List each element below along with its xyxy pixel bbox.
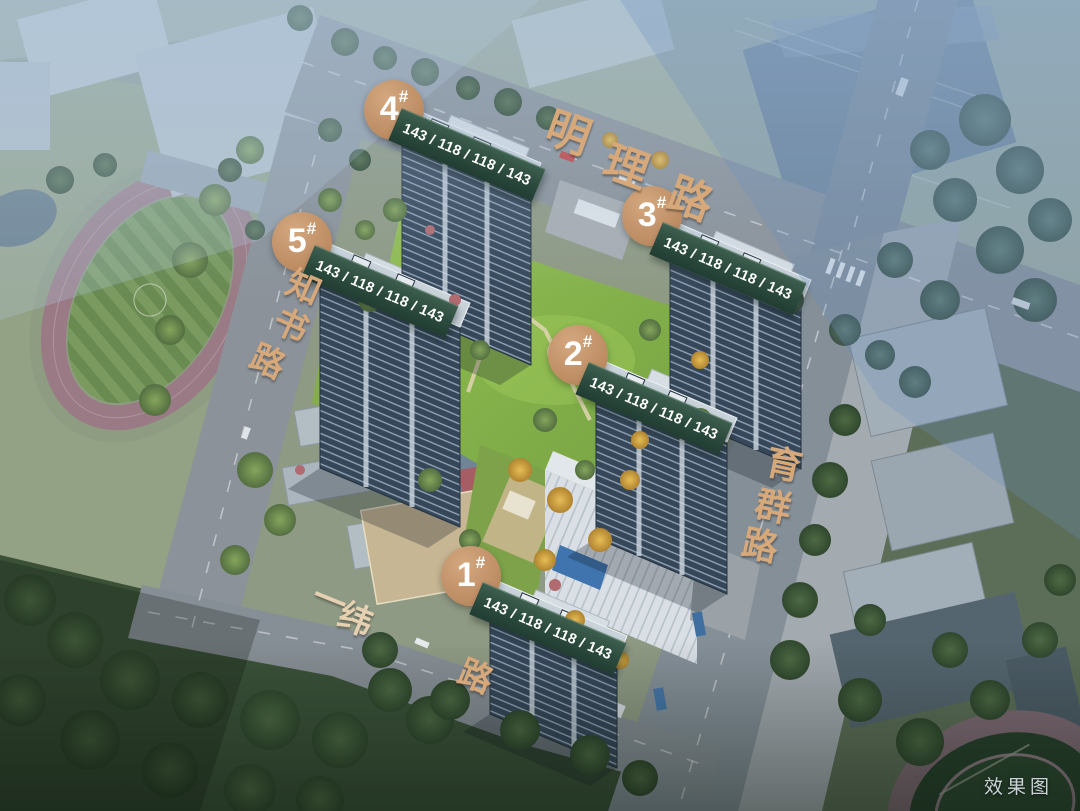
watermark-rendering-disclaimer: 效果图	[984, 772, 1053, 799]
badge-number: 5	[288, 212, 307, 272]
badge-number: 3	[638, 186, 657, 246]
badge-number: 1	[457, 546, 476, 606]
aerial-rendering: 4# 5# 3# 2# 1# 143 / 118 / 118 / 143 143…	[0, 0, 1080, 811]
badge-number: 2	[564, 325, 583, 385]
road-label-yuqun-char-2: 路	[739, 525, 782, 568]
scene-background	[0, 0, 1080, 811]
road-label-yuqun-char-0: 育	[763, 444, 806, 487]
road-label-yuqun-char-1: 群	[752, 486, 795, 529]
